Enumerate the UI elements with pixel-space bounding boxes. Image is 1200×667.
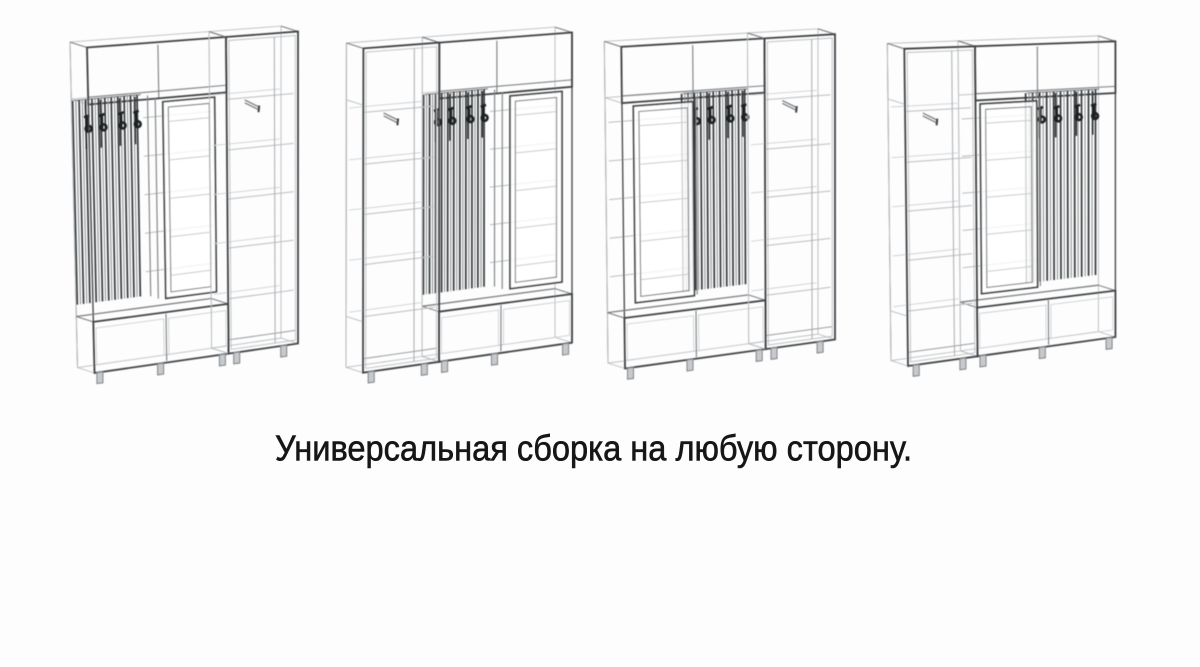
svg-text:Универсальная сборка на любую: Универсальная сборка на любую сторону. <box>275 427 912 468</box>
